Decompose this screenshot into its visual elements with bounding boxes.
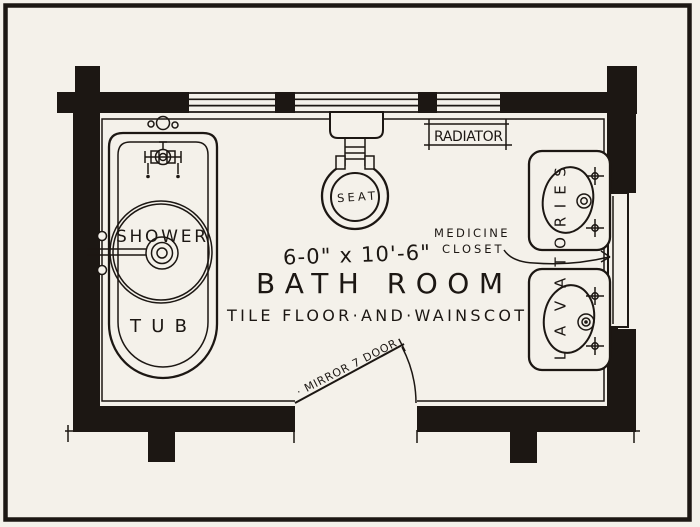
svg-text:S: S: [552, 167, 570, 177]
tub-faucet-icon: [145, 142, 181, 178]
svg-text:E: E: [552, 185, 570, 194]
svg-text:I: I: [552, 204, 570, 208]
svg-text:O: O: [552, 237, 570, 249]
lavatory-top: [529, 151, 610, 250]
window-right: [436, 93, 501, 112]
medicine-closet-label-line2: CLOSET: [442, 242, 503, 256]
toilet: SEAT: [322, 112, 388, 229]
window-left: [188, 93, 276, 112]
svg-text:T: T: [552, 257, 570, 268]
svg-text:A: A: [552, 325, 570, 336]
svg-text:V: V: [552, 300, 570, 311]
lavatory-bottom: [529, 269, 610, 370]
floor-plan-drawing: · MIRROR 7 DOOR: [0, 0, 700, 527]
shower-label: SHOWER: [116, 227, 206, 247]
toilet-tank: [330, 112, 383, 138]
finish-note: TILE FLOOR·AND·WAINSCOT: [226, 306, 524, 325]
radiator-label: RADIATOR: [434, 129, 503, 145]
shower-icon: [87, 201, 212, 303]
window-band: [188, 93, 501, 112]
room-title: BATH ROOM: [256, 267, 503, 300]
svg-text:A: A: [552, 277, 570, 288]
svg-text:L: L: [552, 351, 570, 360]
mirror-door-label: · MIRROR 7 DOOR: [294, 336, 400, 398]
floor-plan-page: · MIRROR 7 DOOR: [0, 0, 700, 527]
window-center: [294, 93, 419, 112]
radiator-label-box: RADIATOR: [424, 119, 512, 150]
door-swing-arc: [402, 347, 416, 403]
medicine-closet-label-line1: MEDICINE: [434, 226, 509, 240]
door: · MIRROR 7 DOOR: [294, 336, 416, 403]
room-dimensions-label: 6-0" x 10'-6": [283, 240, 432, 269]
tub-label: TUB: [129, 316, 187, 337]
svg-text:R: R: [552, 217, 570, 227]
bathtub: SHOWER TUB: [87, 117, 217, 379]
